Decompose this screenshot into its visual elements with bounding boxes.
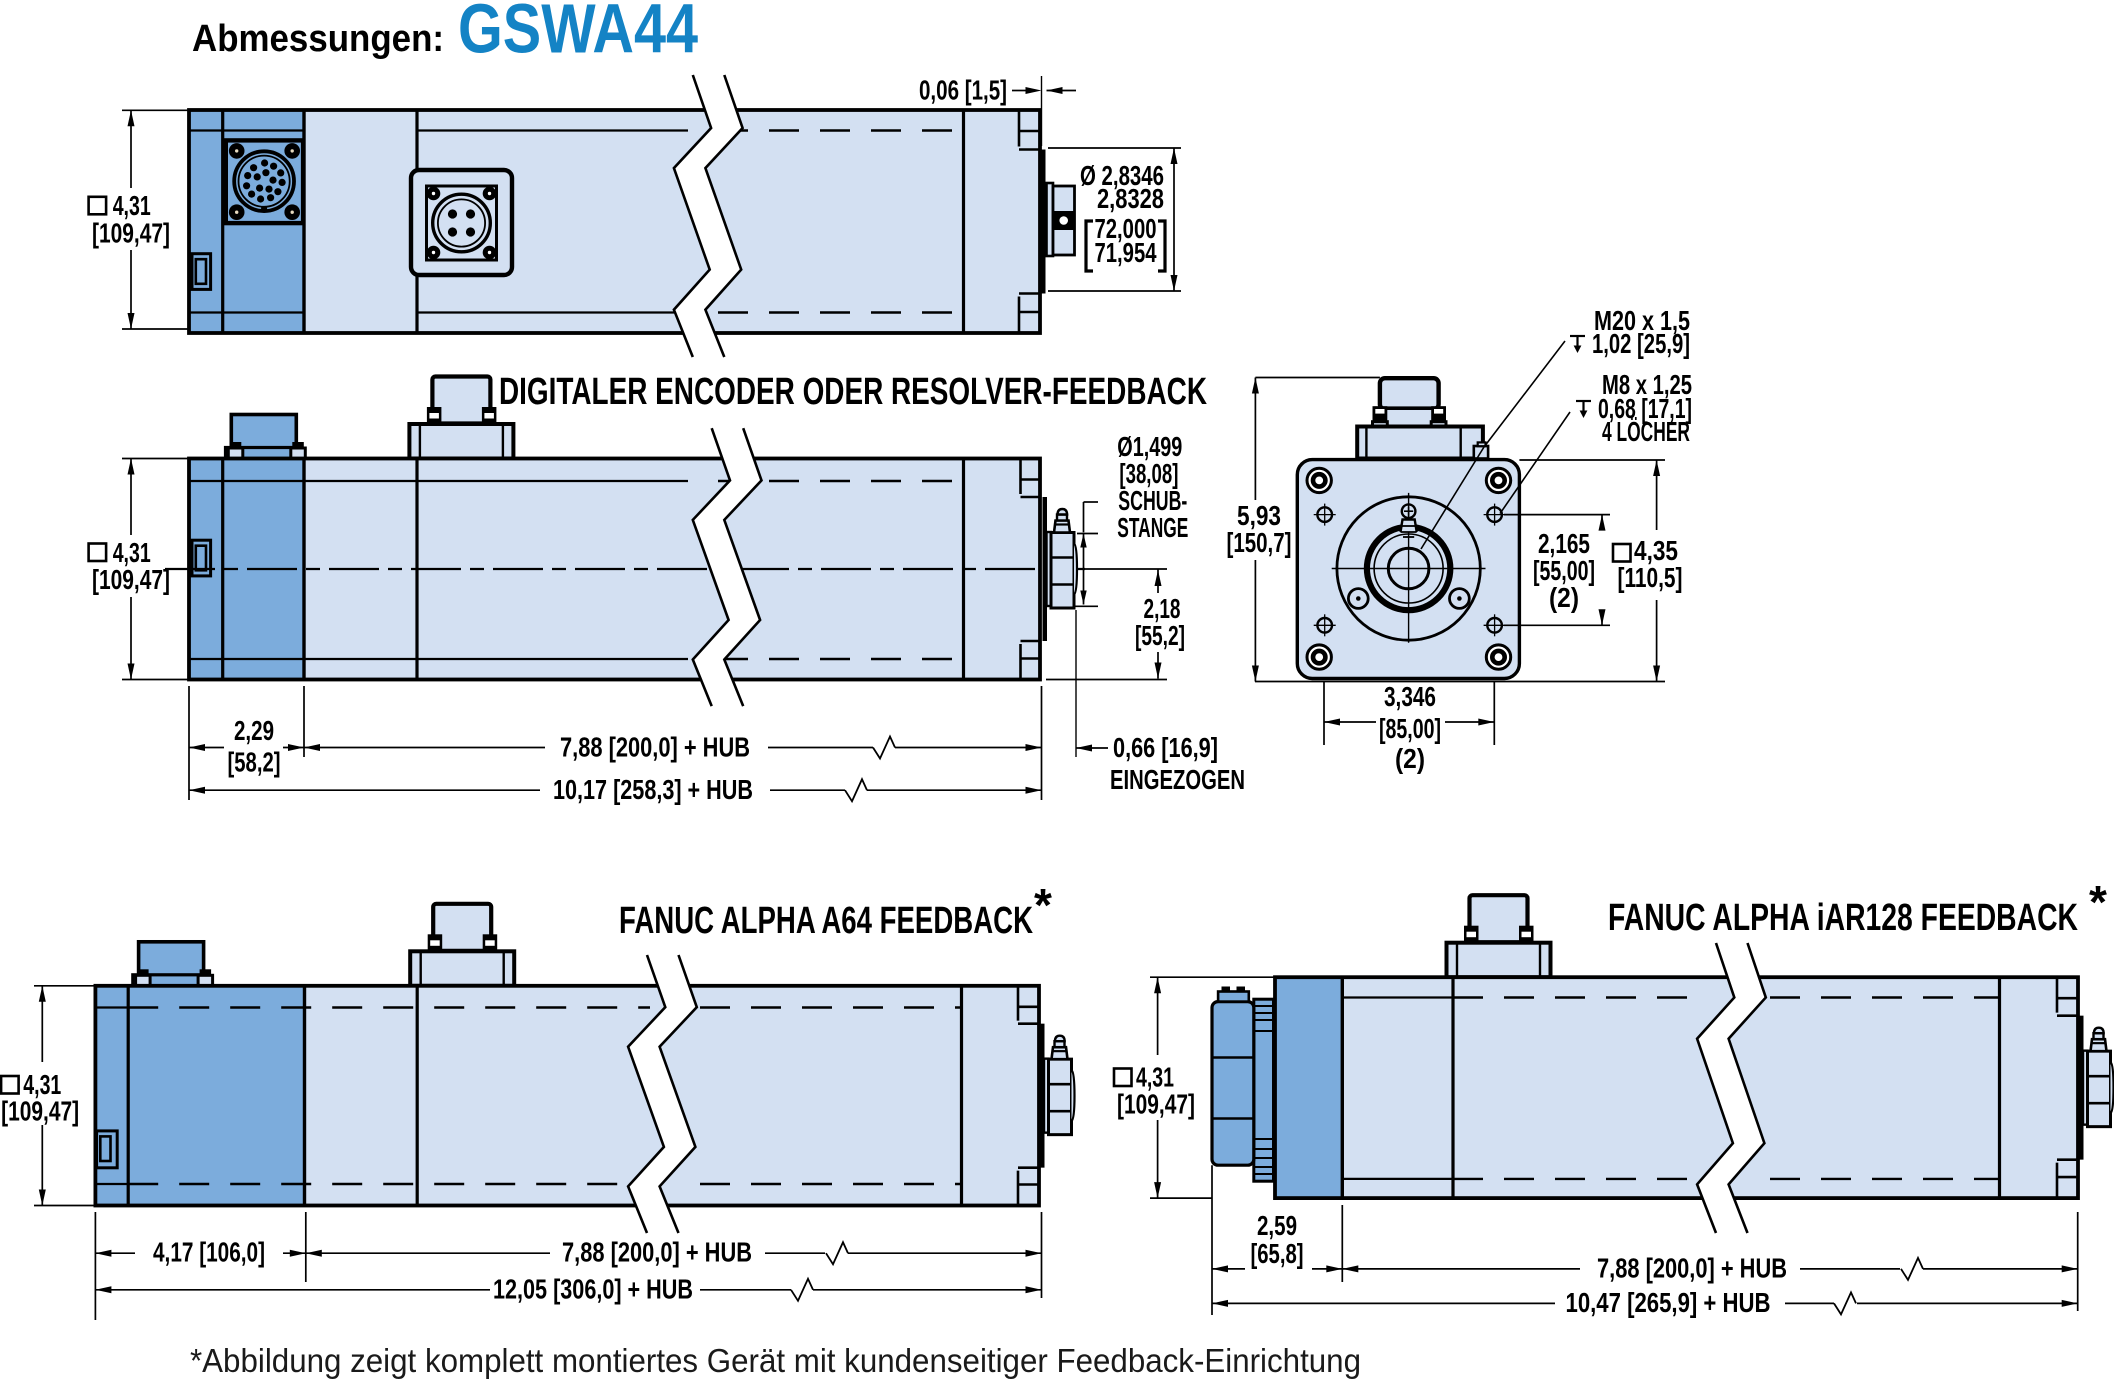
svg-text:[109,47]: [109,47] — [1, 1096, 79, 1127]
svg-text:7,88 [200,0] + HUB: 7,88 [200,0] + HUB — [560, 732, 750, 763]
svg-text:[58,2]: [58,2] — [228, 747, 281, 778]
svg-text:*: * — [2089, 876, 2107, 928]
svg-text:FANUC ALPHA iAR128 FEEDBACK: FANUC ALPHA iAR128 FEEDBACK — [1608, 897, 2078, 939]
svg-text:Abmessungen:: Abmessungen: — [192, 18, 444, 60]
svg-text:[109,47]: [109,47] — [92, 217, 170, 248]
svg-text:[85,00]: [85,00] — [1379, 713, 1441, 744]
svg-text:2,59: 2,59 — [1257, 1210, 1297, 1241]
svg-text:4 LÖCHER: 4 LÖCHER — [1602, 416, 1690, 447]
svg-text:*: * — [1034, 879, 1052, 931]
svg-text:(2): (2) — [1549, 582, 1579, 613]
svg-text:STANGE: STANGE — [1117, 512, 1188, 543]
svg-text:[110,5]: [110,5] — [1618, 562, 1683, 593]
svg-text:1,02 [25,9]: 1,02 [25,9] — [1592, 328, 1690, 359]
svg-text:[109,47]: [109,47] — [1117, 1089, 1195, 1120]
svg-text:GSWA44: GSWA44 — [458, 0, 698, 68]
svg-text:FANUC ALPHA A64 FEEDBACK: FANUC ALPHA A64 FEEDBACK — [619, 900, 1033, 942]
svg-text:*Abbildung zeigt komplett mont: *Abbildung zeigt komplett montiertes Ger… — [190, 1342, 1361, 1379]
svg-text:7,88 [200,0] + HUB: 7,88 [200,0] + HUB — [1597, 1252, 1787, 1283]
svg-text:10,17 [258,3] + HUB: 10,17 [258,3] + HUB — [553, 774, 753, 805]
svg-text:EINGEZOGEN: EINGEZOGEN — [1110, 764, 1245, 795]
svg-text:[109,47]: [109,47] — [92, 564, 170, 595]
svg-text:0,66 [16,9]: 0,66 [16,9] — [1113, 732, 1218, 763]
svg-text:10,47 [265,9] + HUB: 10,47 [265,9] + HUB — [1566, 1287, 1771, 1318]
svg-text:[55,2]: [55,2] — [1135, 620, 1185, 651]
svg-text:(2): (2) — [1395, 743, 1425, 774]
svg-text:2,8328: 2,8328 — [1097, 183, 1164, 214]
svg-text:2,29: 2,29 — [234, 715, 274, 746]
svg-text:DIGITALER ENCODER ODER RESOLVE: DIGITALER ENCODER ODER RESOLVER-FEEDBACK — [499, 371, 1207, 413]
svg-text:4,17 [106,0]: 4,17 [106,0] — [153, 1237, 265, 1268]
svg-text:[150,7]: [150,7] — [1227, 527, 1292, 558]
svg-text:3,346: 3,346 — [1384, 681, 1436, 712]
svg-text:0,06 [1,5]: 0,06 [1,5] — [919, 75, 1007, 106]
svg-text:[65,8]: [65,8] — [1251, 1238, 1304, 1269]
svg-text:7,88 [200,0] + HUB: 7,88 [200,0] + HUB — [562, 1237, 752, 1268]
svg-text:12,05 [306,0] + HUB: 12,05 [306,0] + HUB — [493, 1273, 693, 1304]
svg-text:71,954: 71,954 — [1095, 237, 1158, 268]
